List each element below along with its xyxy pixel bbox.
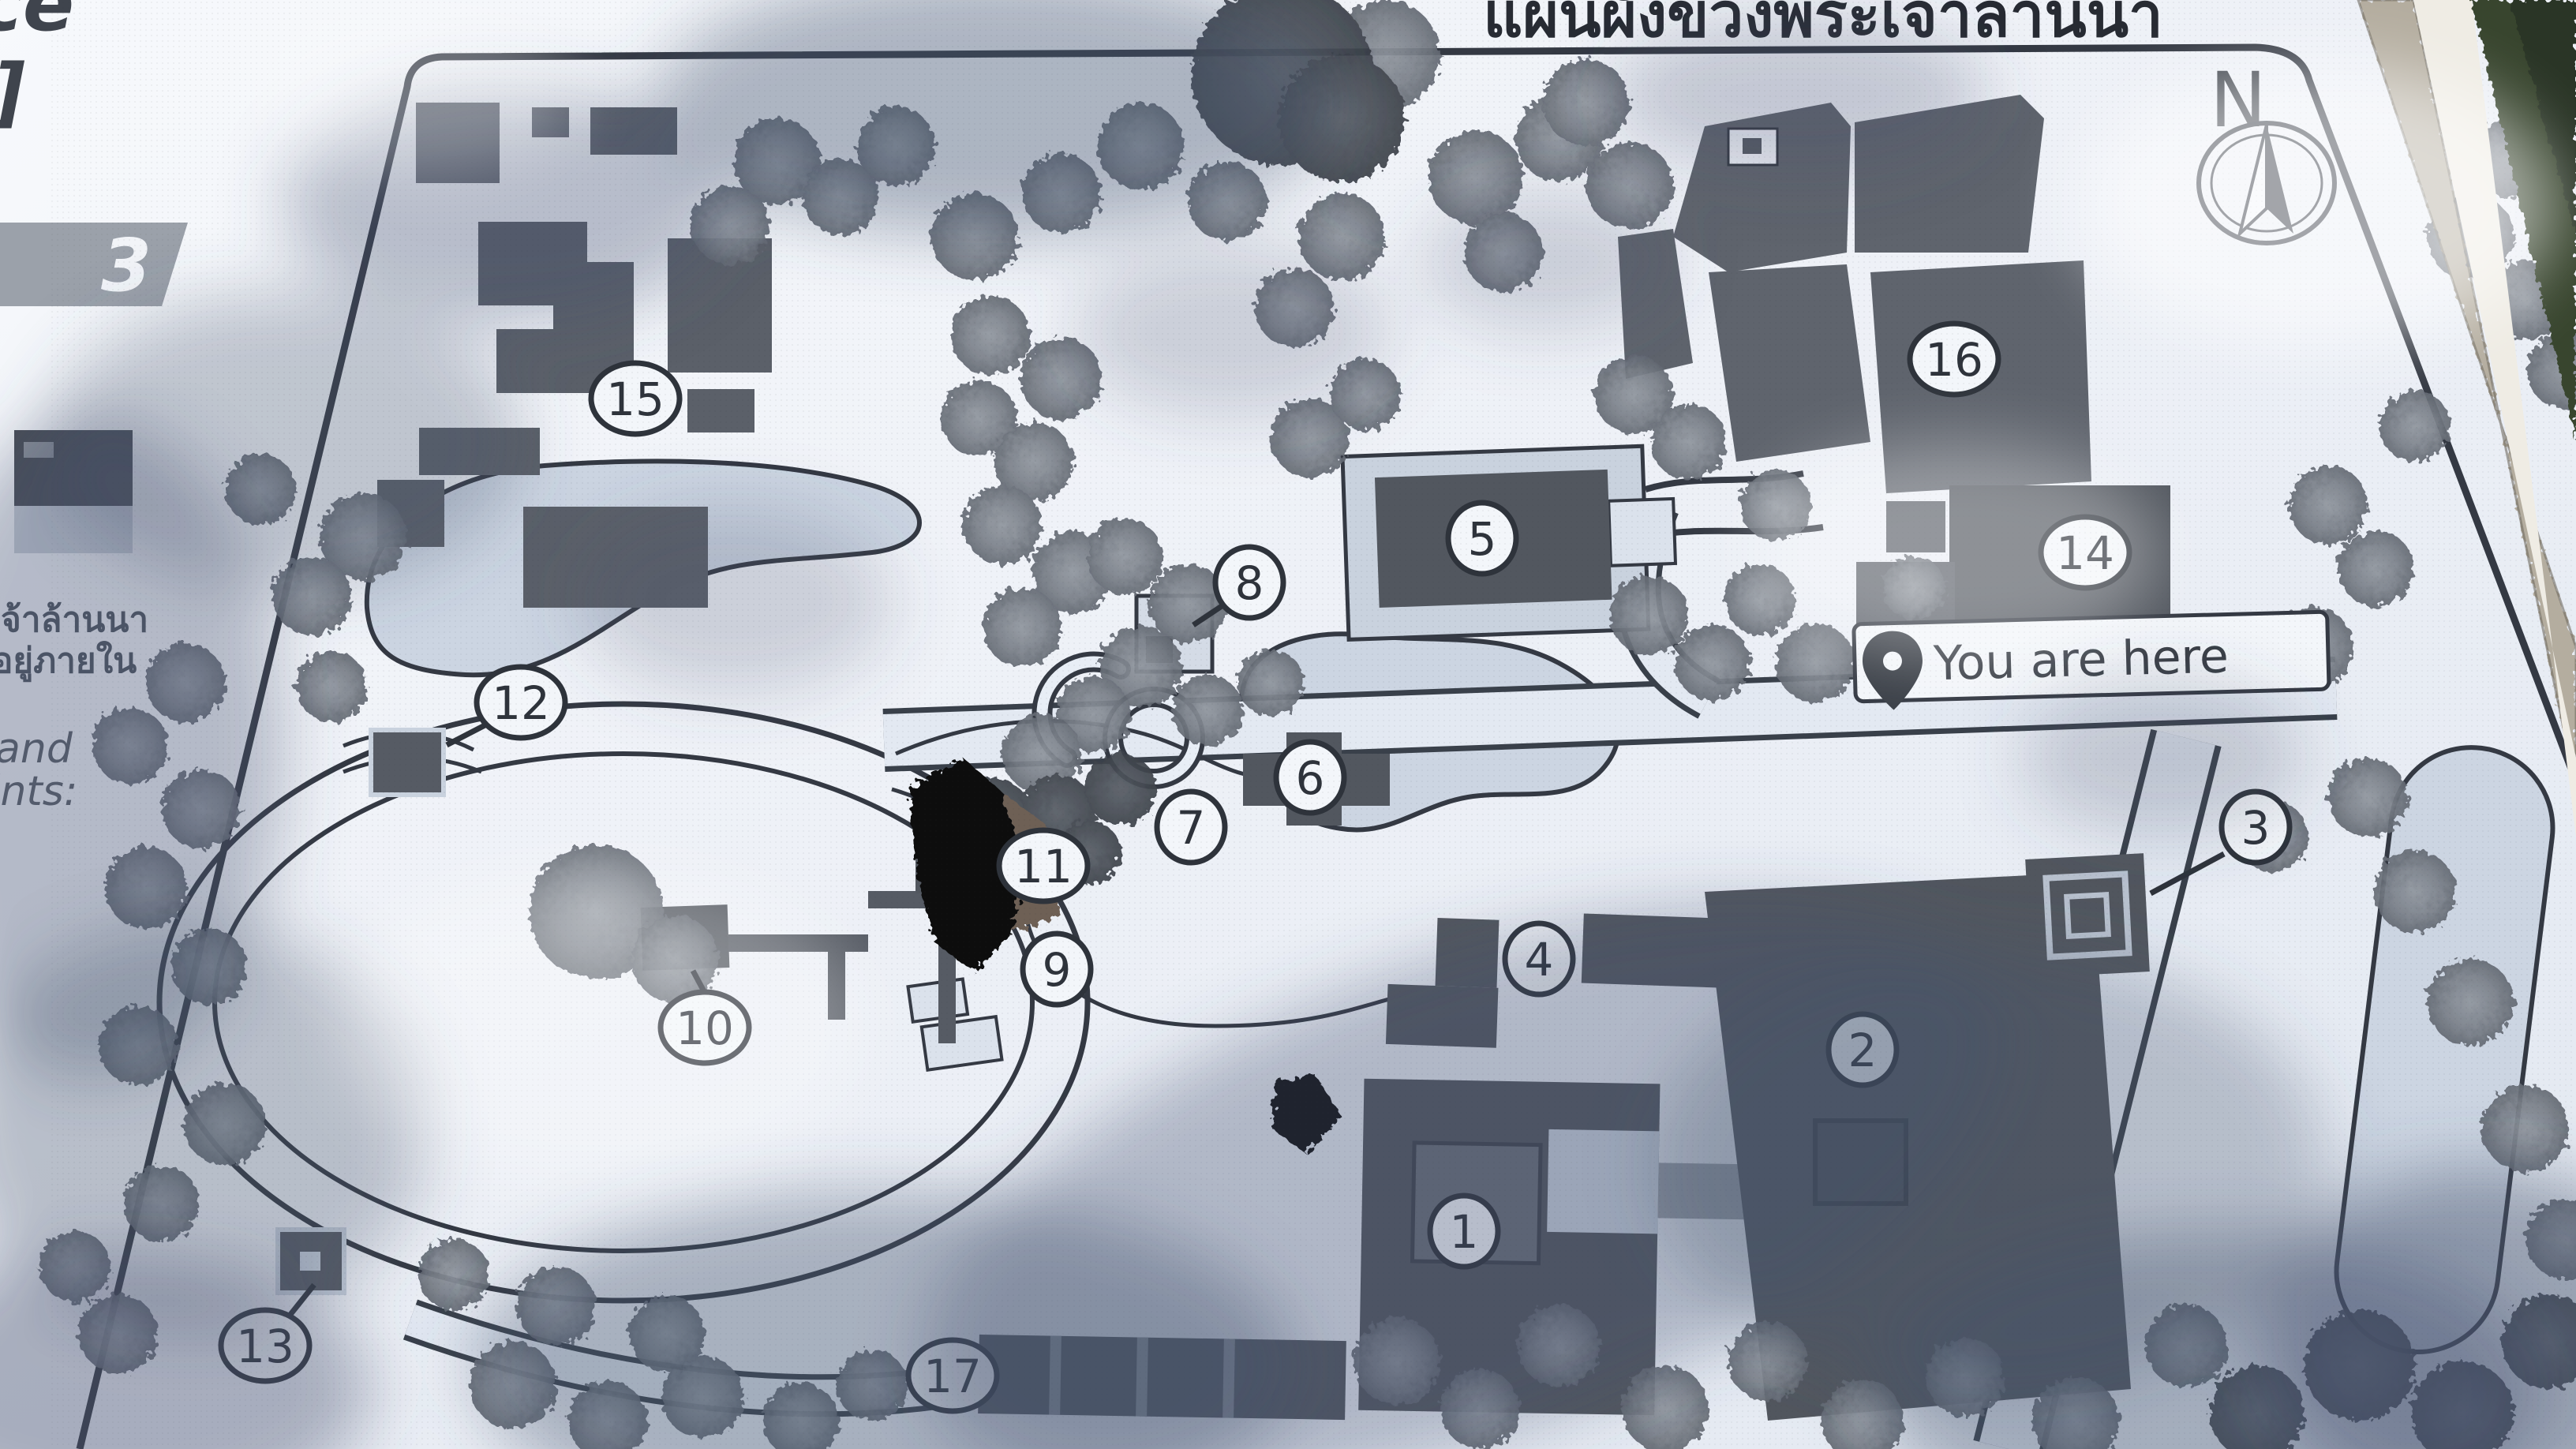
panel-fragment-bracket: ]: [0, 48, 25, 137]
photo-of-park-map-sign: ce ] 3 เจ้าล้านนา อยู่ภายใน and ints:: [0, 0, 2576, 1449]
park-map-sign: ce ] 3 เจ้าล้านนา อยู่ภายใน and ints:: [0, 0, 2576, 1449]
